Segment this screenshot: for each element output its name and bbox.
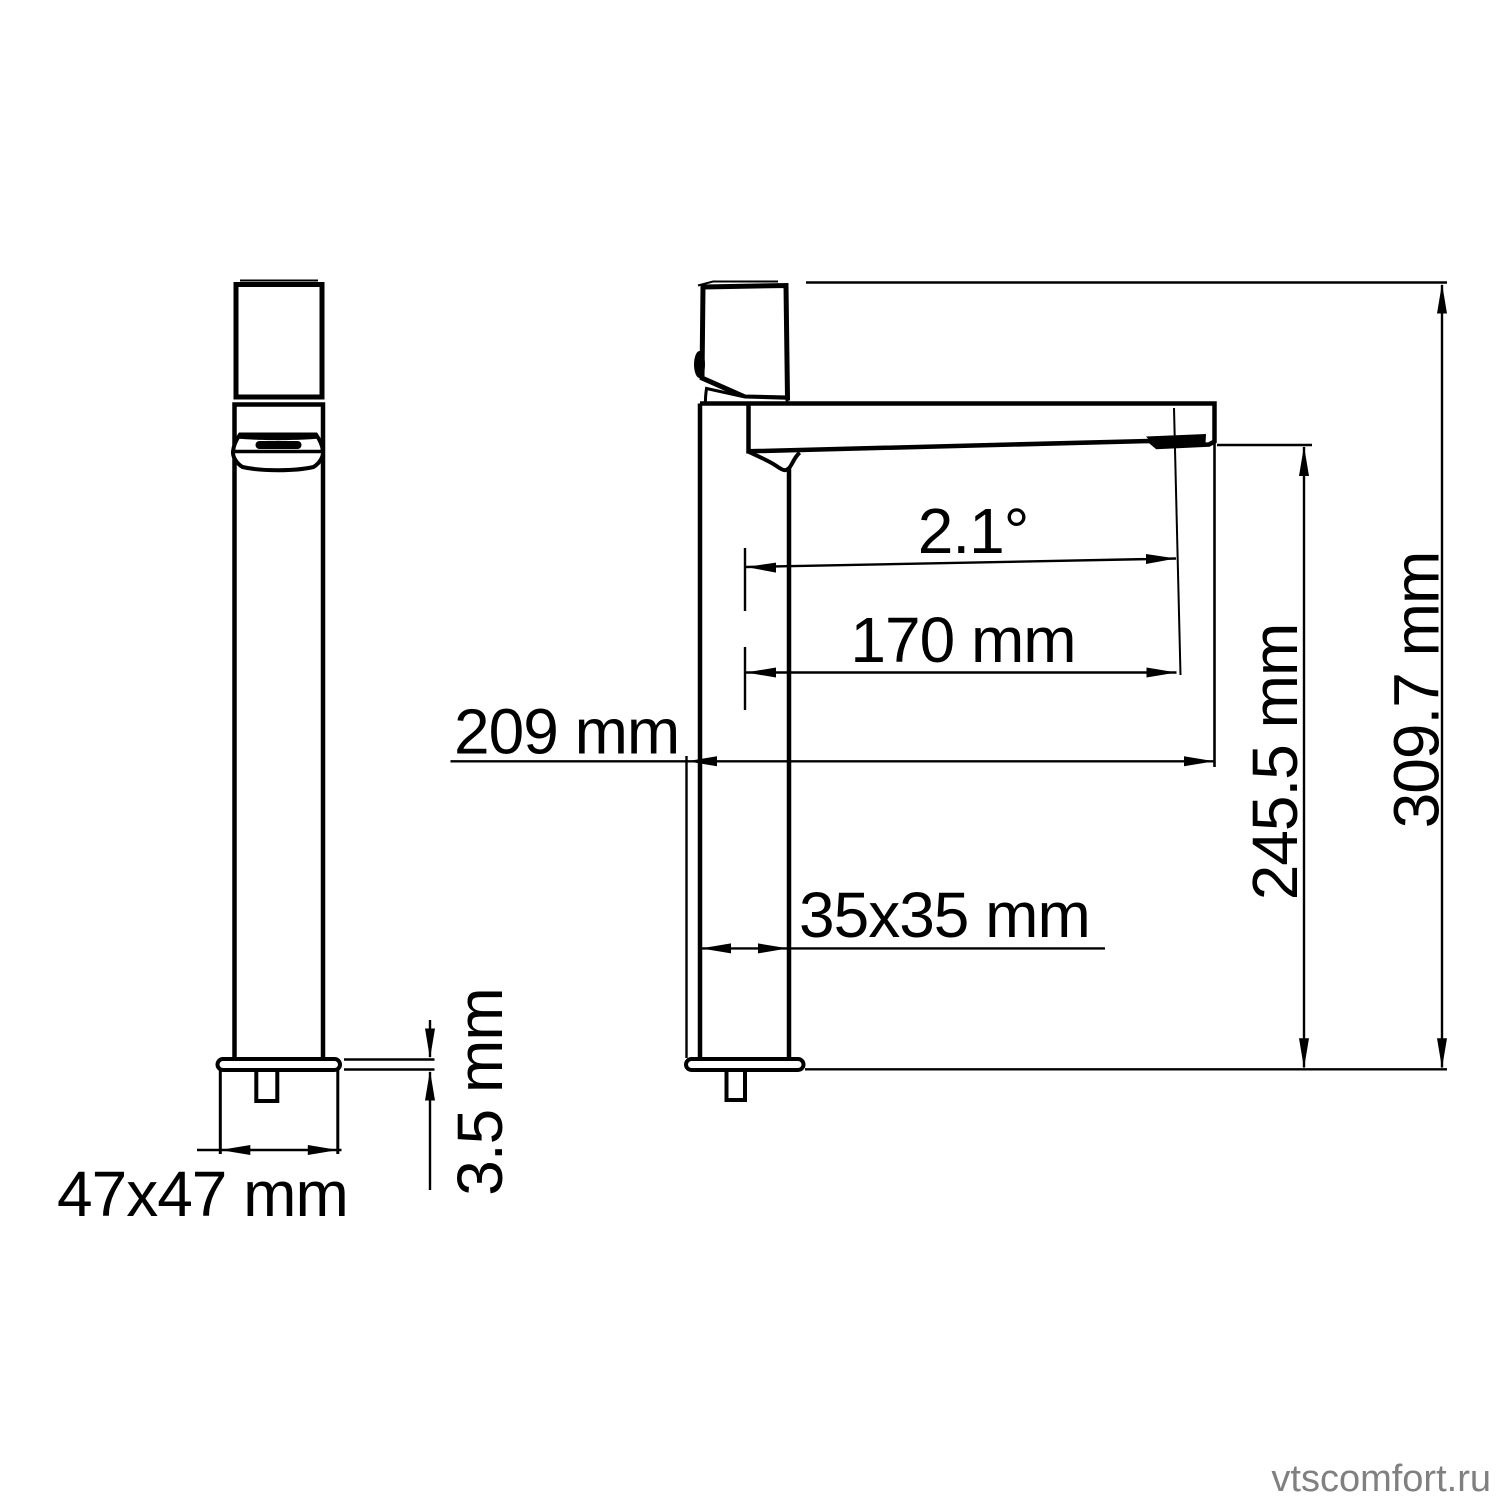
svg-text:245.5 mm: 245.5 mm <box>1239 624 1311 901</box>
svg-text:3.5 mm: 3.5 mm <box>444 988 516 1195</box>
svg-text:209 mm: 209 mm <box>454 696 679 768</box>
svg-text:35x35 mm: 35x35 mm <box>799 879 1090 951</box>
svg-text:vtscomfort.ru: vtscomfort.ru <box>1271 1458 1491 1500</box>
svg-text:309.7 mm: 309.7 mm <box>1381 552 1453 829</box>
svg-text:47x47 mm: 47x47 mm <box>57 1158 348 1230</box>
svg-text:170 mm: 170 mm <box>850 604 1075 676</box>
svg-text:2.1°: 2.1° <box>918 495 1029 567</box>
